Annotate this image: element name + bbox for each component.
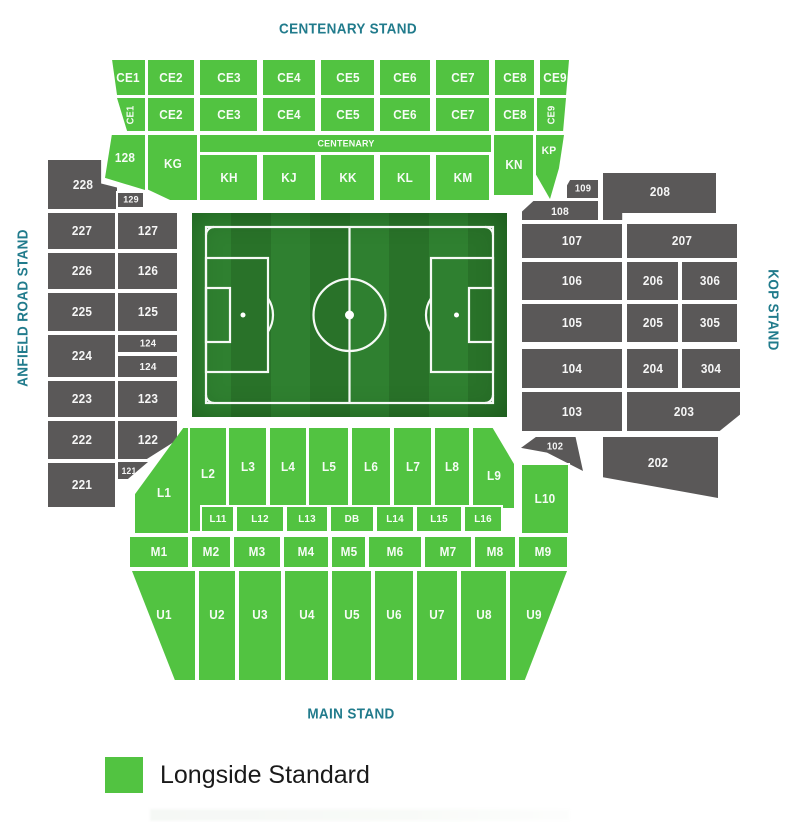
section-kl-kl[interactable]: KL	[380, 155, 430, 200]
section-label: L6	[364, 460, 378, 474]
section-121-s121[interactable]: 121	[118, 462, 148, 479]
section-222-s222[interactable]: 222	[48, 421, 115, 459]
section-label: M4	[298, 545, 315, 559]
section-label: L5	[321, 460, 335, 474]
section-label: 125	[137, 305, 157, 319]
section-label: 122	[137, 433, 157, 447]
section-u1-u1[interactable]: U1	[132, 571, 195, 680]
section-label: 202	[648, 456, 668, 470]
section-l15-l15[interactable]: L15	[417, 507, 461, 531]
football-pitch	[192, 213, 507, 417]
section-label: 224	[71, 349, 91, 363]
section-m3-m3[interactable]: M3	[234, 537, 280, 567]
section-label: KN	[505, 158, 522, 172]
section-label: CE3	[217, 71, 240, 85]
section-label: KL	[397, 171, 413, 185]
section-label: 227	[71, 224, 91, 238]
section-kh-kh[interactable]: KH	[200, 155, 257, 200]
section-label: CE3	[217, 108, 240, 122]
seat-map: CE1CE2CE3CE4CE5CE6CE7CE8CE9CE1CE2CE3CE4C…	[0, 0, 799, 822]
section-304-s304[interactable]: 304	[682, 349, 740, 388]
section-label: M7	[440, 545, 457, 559]
section-ce7-ce7a[interactable]: CE7	[436, 60, 489, 95]
section-label: 103	[562, 405, 582, 419]
section-label: CE9	[543, 71, 566, 85]
section-label: CE7	[451, 71, 474, 85]
section-label: CE4	[277, 108, 300, 122]
section-label: 222	[71, 433, 91, 447]
section-label: L14	[386, 513, 404, 525]
section-label: M3	[249, 545, 266, 559]
section-kj-kj[interactable]: KJ	[263, 155, 315, 200]
legend: Longside Standard	[105, 757, 370, 793]
section-l7-l7[interactable]: L7	[394, 428, 431, 506]
section-label: CE1	[126, 105, 137, 124]
section-kn-kn[interactable]: KN	[494, 135, 533, 195]
section-label: 106	[562, 274, 582, 288]
section-label: KM	[453, 171, 472, 185]
section-label: 304	[701, 362, 721, 376]
section-305-s305[interactable]: 305	[682, 304, 737, 342]
section-227-s227[interactable]: 227	[48, 213, 115, 249]
section-label: KG	[163, 157, 181, 171]
section-label: 123	[137, 392, 157, 406]
section-label: U7	[429, 608, 444, 622]
section-label: M8	[487, 545, 504, 559]
section-label: CE6	[393, 71, 416, 85]
section-label: CE4	[277, 71, 300, 85]
section-ce6-ce6b[interactable]: CE6	[380, 98, 430, 131]
section-label: CE9	[546, 105, 557, 124]
section-label: 207	[672, 234, 692, 248]
section-label: 205	[642, 316, 662, 330]
section-label: 206	[642, 274, 662, 288]
section-l16-l16[interactable]: L16	[465, 507, 501, 531]
section-label: CE5	[336, 108, 359, 122]
section-kg-kg[interactable]: KG	[148, 135, 197, 200]
section-label: 305	[699, 316, 719, 330]
section-label: 223	[71, 392, 91, 406]
section-202-s202[interactable]: 202	[603, 437, 718, 498]
section-label: CE8	[503, 71, 526, 85]
section-db-db[interactable]: DB	[331, 507, 373, 531]
section-206-s206[interactable]: 206	[627, 262, 678, 300]
section-label: 128	[115, 151, 135, 165]
section-label: U3	[252, 608, 267, 622]
section-ce5-ce5a[interactable]: CE5	[321, 60, 374, 95]
section-label: L13	[298, 513, 316, 525]
section-km-km[interactable]: KM	[436, 155, 489, 200]
section-225-s225[interactable]: 225	[48, 293, 115, 331]
section-label: CE8	[503, 108, 526, 122]
section-label: 203	[673, 405, 693, 419]
section-label: L4	[281, 460, 295, 474]
section-128-s128[interactable]: 128	[105, 135, 145, 190]
section-label: CENTENARY	[317, 138, 374, 149]
section-label: L15	[430, 513, 448, 525]
section-m4-m4[interactable]: M4	[284, 537, 328, 567]
section-label: CE6	[393, 108, 416, 122]
section-ce4-ce4b[interactable]: CE4	[263, 98, 315, 131]
section-u8-u8[interactable]: U8	[461, 571, 506, 680]
section-l5-l5[interactable]: L5	[309, 428, 348, 506]
section-ce1-ce1b[interactable]: CE1	[117, 98, 145, 131]
pitch-markings	[192, 213, 507, 417]
section-m5-m5[interactable]: M5	[332, 537, 365, 567]
section-kk-kk[interactable]: KK	[321, 155, 374, 200]
section-label: KK	[339, 171, 356, 185]
section-l8-l8[interactable]: L8	[435, 428, 469, 506]
section-label: CE1	[116, 71, 139, 85]
section-label: 102	[547, 442, 563, 453]
section-label: CE5	[336, 71, 359, 85]
section-label: M2	[203, 545, 220, 559]
section-ce3-ce3a[interactable]: CE3	[200, 60, 257, 95]
section-label: M9	[535, 545, 552, 559]
section-l11-l11[interactable]: L11	[202, 507, 233, 531]
section-l3-l3[interactable]: L3	[229, 428, 266, 506]
section-306-s306[interactable]: 306	[682, 262, 737, 300]
section-label: M1	[151, 545, 168, 559]
section-l14-l14[interactable]: L14	[377, 507, 413, 531]
section-label: 109	[574, 184, 590, 195]
section-203-s203[interactable]: 203	[627, 392, 740, 431]
section-106-s106[interactable]: 106	[522, 262, 622, 300]
section-ce9-ce9b[interactable]: CE9	[537, 98, 566, 131]
section-m1-m1[interactable]: M1	[130, 537, 188, 567]
section-label: 105	[562, 316, 582, 330]
section-m8-m8[interactable]: M8	[475, 537, 515, 567]
section-ce2-ce2b[interactable]: CE2	[148, 98, 194, 131]
section-label: CE7	[451, 108, 474, 122]
section-205-s205[interactable]: 205	[627, 304, 678, 342]
section-label: 306	[699, 274, 719, 288]
section-label: U6	[386, 608, 401, 622]
section-ce1-ce1a[interactable]: CE1	[110, 60, 145, 95]
section-label: 108	[551, 206, 569, 218]
section-l10-l10[interactable]: L10	[522, 465, 568, 533]
section-label: U2	[209, 608, 224, 622]
section-label: L3	[240, 460, 254, 474]
section-label: KH	[220, 171, 237, 185]
section-label: U1	[156, 608, 171, 622]
section-ce3-ce3b[interactable]: CE3	[200, 98, 257, 131]
section-ce8-ce8b[interactable]: CE8	[495, 98, 534, 131]
section-ce9-ce9a[interactable]: CE9	[540, 60, 569, 95]
section-label: U5	[344, 608, 359, 622]
section-label: 127	[137, 224, 157, 238]
section-u7-u7[interactable]: U7	[417, 571, 457, 680]
artifact-bar	[150, 809, 570, 821]
section-u5-u5[interactable]: U5	[332, 571, 371, 680]
section-label: L8	[445, 460, 459, 474]
section-124-s124a[interactable]: 124	[118, 335, 177, 352]
section-107-s107[interactable]: 107	[522, 224, 622, 258]
section-123-s123[interactable]: 123	[118, 381, 177, 417]
section-label: KP	[541, 145, 556, 157]
section-label: L7	[405, 460, 419, 474]
section-label: 124	[139, 338, 155, 349]
section-l6-l6[interactable]: L6	[352, 428, 390, 506]
section-104-s104[interactable]: 104	[522, 349, 622, 388]
section-129-s129[interactable]: 129	[118, 193, 143, 207]
section-label: 204	[642, 362, 662, 376]
section-ce8-ce8a[interactable]: CE8	[495, 60, 534, 95]
section-label: L9	[486, 469, 500, 483]
section-124-s124b[interactable]: 124	[118, 356, 177, 377]
section-label: L1	[157, 486, 171, 500]
section-label: U8	[476, 608, 491, 622]
section-u2-u2[interactable]: U2	[199, 571, 235, 680]
section-label: 104	[562, 362, 582, 376]
section-label: M5	[340, 545, 357, 559]
section-228-s228[interactable]: 228	[48, 160, 117, 209]
section-label: U9	[526, 608, 541, 622]
section-label: 107	[562, 234, 582, 248]
section-208-s208[interactable]: 208	[603, 173, 716, 220]
section-125-s125[interactable]: 125	[118, 293, 177, 331]
seat-map-page: CENTENARY STAND ANFIELD ROAD STAND KOP S…	[0, 0, 799, 822]
section-223-s223[interactable]: 223	[48, 381, 115, 417]
legend-swatch-longside-standard	[105, 757, 143, 793]
section-126-s126[interactable]: 126	[118, 253, 177, 289]
section-centenary-cstrip[interactable]: CENTENARY	[200, 135, 491, 152]
section-label: 208	[649, 185, 669, 199]
section-l13-l13[interactable]: L13	[287, 507, 327, 531]
section-label: 121	[121, 466, 136, 476]
section-109-s109[interactable]: 109	[567, 180, 598, 198]
section-ce2-ce2a[interactable]: CE2	[148, 60, 194, 95]
section-label: 221	[71, 478, 91, 492]
section-m9-m9[interactable]: M9	[519, 537, 567, 567]
section-label: M6	[387, 545, 404, 559]
section-label: 124	[139, 361, 156, 373]
section-221-s221[interactable]: 221	[48, 463, 115, 507]
section-label: 228	[72, 178, 92, 192]
section-label: L10	[535, 492, 556, 506]
section-label: 126	[137, 264, 157, 278]
section-label: CE2	[159, 108, 182, 122]
section-207-s207[interactable]: 207	[627, 224, 737, 258]
section-204-s204[interactable]: 204	[627, 349, 678, 388]
section-l12-l12[interactable]: L12	[237, 507, 283, 531]
section-108-s108[interactable]: 108	[522, 201, 598, 220]
section-u3-u3[interactable]: U3	[239, 571, 281, 680]
section-u4-u4[interactable]: U4	[285, 571, 328, 680]
section-label: 225	[71, 305, 91, 319]
section-127-s127[interactable]: 127	[118, 213, 177, 249]
section-m7-m7[interactable]: M7	[425, 537, 471, 567]
section-m2-m2[interactable]: M2	[192, 537, 230, 567]
section-label: 226	[71, 264, 91, 278]
section-ce7-ce7b[interactable]: CE7	[436, 98, 489, 131]
section-ce6-ce6a[interactable]: CE6	[380, 60, 430, 95]
section-label: L2	[201, 467, 215, 481]
section-m6-m6[interactable]: M6	[369, 537, 421, 567]
section-226-s226[interactable]: 226	[48, 253, 115, 289]
section-label: L12	[251, 513, 269, 525]
section-u6-u6[interactable]: U6	[375, 571, 413, 680]
section-ce4-ce4a[interactable]: CE4	[263, 60, 315, 95]
section-103-s103[interactable]: 103	[522, 392, 622, 431]
section-kp-kp[interactable]: KP	[536, 135, 564, 199]
section-105-s105[interactable]: 105	[522, 304, 622, 342]
section-label: DB	[345, 513, 360, 525]
section-label: L11	[209, 513, 226, 525]
legend-label-longside-standard: Longside Standard	[160, 761, 370, 790]
section-label: L16	[474, 513, 492, 525]
section-ce5-ce5b[interactable]: CE5	[321, 98, 374, 131]
section-l9-l9[interactable]: L9	[473, 428, 514, 508]
section-u9-u9[interactable]: U9	[510, 571, 567, 680]
section-label: 129	[123, 195, 138, 206]
section-label: CE2	[159, 71, 182, 85]
section-224-s224[interactable]: 224	[48, 335, 115, 377]
section-l4-l4[interactable]: L4	[270, 428, 306, 506]
section-label: KJ	[281, 171, 296, 185]
section-label: U4	[299, 608, 314, 622]
